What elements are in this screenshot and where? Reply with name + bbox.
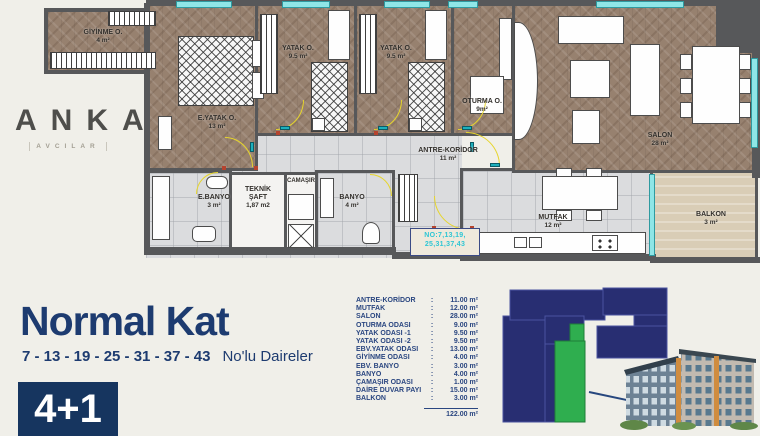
area-row-value: 28.00 m²	[436, 313, 478, 321]
area-row: OTURMA ODASI:9.00 m²	[356, 322, 478, 330]
brand-logo-sub: AVCILAR	[8, 142, 128, 151]
building-svg	[614, 330, 760, 430]
logo-letter: K	[79, 104, 115, 138]
area-row-label: SALON	[356, 313, 428, 321]
chair	[739, 78, 751, 94]
wardrobe-hatch	[398, 174, 418, 222]
room-area: 4 m²	[84, 37, 123, 45]
wall-bottom-4	[650, 257, 760, 263]
chair	[586, 168, 602, 177]
area-row-colon: :	[428, 346, 436, 354]
kitchen-table	[542, 176, 618, 210]
page-subtitle: 7 - 13 - 19 - 25 - 31 - 37 - 43 No'lu Da…	[22, 348, 313, 365]
room-area: 3 m²	[198, 202, 230, 210]
area-row-value: 15.00 m²	[436, 387, 478, 395]
laundry-x	[288, 224, 314, 248]
room-name: E.YATAK O.	[198, 115, 236, 123]
chair	[739, 54, 751, 70]
room-name: ANTRE-KORİDOR	[418, 147, 478, 155]
room-label-ebanyo: E.BANYO 3 m²	[198, 194, 230, 210]
door-jamb	[280, 126, 290, 130]
room-area: 11 m²	[418, 155, 478, 163]
area-row-label: YATAK ODASI -2	[356, 338, 428, 346]
room-label-balkon: BALKON 3 m²	[696, 211, 726, 227]
area-table: ANTRE-KORİDOR:11.00 m² MUTFAK:12.00 m² S…	[356, 297, 478, 418]
room-name: BALKON	[696, 211, 726, 219]
door-jamb	[462, 126, 472, 130]
door-mark	[276, 131, 280, 135]
room-name: YATAK O.	[380, 45, 412, 53]
window-salon-top	[596, 1, 684, 8]
chair	[556, 168, 572, 177]
area-row-value: 4.00 m²	[436, 371, 478, 379]
door-mark	[222, 166, 226, 170]
room-name: BANYO	[339, 194, 364, 202]
room-name: GİYİNME O.	[84, 29, 123, 37]
window-balkon	[649, 174, 655, 256]
sofa	[558, 16, 624, 44]
desk	[328, 10, 350, 60]
logo-sub-text: AVCILAR	[36, 143, 99, 150]
room-label-yatak1: YATAK O. 9.5 m²	[282, 45, 314, 61]
sink-cabinet	[320, 178, 334, 218]
room-label-teknik-saft: TEKNİK ŞAFT 1,87 m2	[236, 186, 280, 210]
area-row-colon: :	[428, 305, 436, 313]
stove	[592, 235, 618, 251]
area-row-value: 9.00 m²	[436, 322, 478, 330]
area-row-colon: :	[428, 330, 436, 338]
side-table	[572, 110, 600, 144]
area-row: BANYO:4.00 m²	[356, 371, 478, 379]
area-row-value: 1.00 m²	[436, 379, 478, 387]
area-row-label: GİYİNME ODASI	[356, 354, 428, 362]
floorplan-brochure: { "brand": { "letters": ["A","N","K","A"…	[0, 0, 760, 430]
sofa	[630, 44, 660, 116]
room-area: 9m²	[462, 106, 502, 114]
area-row: GİYİNME ODASI:4.00 m²	[356, 354, 478, 362]
logo-letter: N	[44, 104, 80, 138]
area-row-colon: :	[428, 387, 436, 395]
area-row-label: BALKON	[356, 395, 428, 403]
room-label-antre: ANTRE-KORİDOR 11 m²	[418, 147, 478, 163]
area-row-value: 12.00 m²	[436, 305, 478, 313]
window-salon-right	[751, 58, 758, 148]
logo-letter: A	[115, 104, 151, 138]
door-jamb	[378, 126, 388, 130]
brand-logo-letters: A N K A	[8, 100, 128, 142]
room-area: 9.5 m²	[380, 53, 412, 61]
room-label-camasir: CAMAŞIR	[287, 177, 315, 185]
room-label-eyatak: E.YATAK O. 13 m²	[198, 115, 236, 131]
area-row: BALKON:3.00 m²	[356, 395, 478, 403]
area-row-value: 4.00 m²	[436, 354, 478, 362]
toilet	[362, 222, 380, 244]
wardrobe-hatch	[108, 11, 156, 26]
logo-letter: A	[8, 104, 44, 138]
room-label-giyinme: GİYİNME O. 4 m²	[84, 29, 123, 45]
dresser	[158, 116, 172, 150]
area-row-label: ANTRE-KORİDOR	[356, 297, 428, 305]
room-area: 28 m²	[648, 140, 673, 148]
room-name: OTURMA O.	[462, 98, 502, 106]
room-name: E.BANYO	[198, 194, 230, 202]
area-row-value: 11.00 m²	[436, 297, 478, 305]
area-row-colon: :	[428, 354, 436, 362]
area-row-value: 13.00 m²	[436, 346, 478, 354]
desk	[425, 10, 447, 60]
area-row-colon: :	[428, 313, 436, 321]
chair	[680, 102, 692, 118]
unit-number-line2: 25,31,37,43	[411, 241, 479, 250]
window-yatak2	[384, 1, 430, 8]
armchair	[570, 60, 610, 98]
area-row: ANTRE-KORİDOR:11.00 m²	[356, 297, 478, 305]
logo-sub-bar	[29, 142, 30, 151]
unit-number-box: NO:7,13,19, 25,31,37,43	[410, 228, 480, 256]
window-eyatak	[176, 1, 232, 8]
room-label-salon: SALON 28 m²	[648, 132, 673, 148]
room-name: MUTFAK	[538, 214, 567, 222]
area-row-label: EBV. BANYO	[356, 363, 428, 371]
area-row-label: YATAK ODASI -1	[356, 330, 428, 338]
area-row-colon: :	[428, 395, 436, 403]
chair	[680, 78, 692, 94]
unit-type-badge: 4+1	[18, 382, 118, 436]
room-label-oturma: OTURMA O. 9m²	[462, 98, 502, 114]
wardrobe-hatch	[359, 14, 377, 94]
room-label-yatak2: YATAK O. 9.5 m²	[380, 45, 412, 61]
room-area: 3 m²	[696, 219, 726, 227]
brand-logo: A N K A AVCILAR	[8, 100, 128, 151]
logo-sub-bar	[106, 142, 107, 151]
area-row: SALON:28.00 m²	[356, 313, 478, 321]
sink	[529, 237, 542, 248]
chair	[680, 54, 692, 70]
room-label-mutfak: MUTFAK 12 m²	[538, 214, 567, 230]
wall-bottom-3	[460, 254, 656, 261]
chair	[586, 210, 602, 221]
chair	[739, 102, 751, 118]
room-name: TEKNİK ŞAFT	[236, 186, 280, 202]
wall-bottom-1	[144, 247, 396, 255]
room-area: 12 m²	[538, 222, 567, 230]
kitchen-counter	[466, 232, 646, 254]
door-mark	[374, 131, 378, 135]
area-row: EBV. BANYO:3.00 m²	[356, 363, 478, 371]
unit-number-line1: NO:7,13,19,	[411, 232, 479, 241]
page-title: Normal Kat	[20, 298, 229, 345]
area-row: DAİRE DUVAR PAYI:15.00 m²	[356, 387, 478, 395]
room-area: 9.5 m²	[282, 53, 314, 61]
area-total: 122.00 m²	[424, 408, 478, 418]
window-yatak1	[282, 1, 330, 8]
door-mark	[254, 166, 258, 170]
room-teknik-saft	[229, 172, 287, 250]
area-row-colon: :	[428, 371, 436, 379]
area-row: YATAK ODASI -2:9.50 m²	[356, 338, 478, 346]
window-oturma	[448, 1, 478, 8]
area-row-label: ÇAMAŞIR ODASI	[356, 379, 428, 387]
wardrobe-hatch	[50, 52, 156, 69]
room-name: YATAK O.	[282, 45, 314, 53]
area-row-label: BANYO	[356, 371, 428, 379]
room-label-banyo: BANYO 4 m²	[339, 194, 364, 210]
area-row: YATAK ODASI -1:9.50 m²	[356, 330, 478, 338]
area-row-colon: :	[428, 338, 436, 346]
area-row-value: 3.00 m²	[436, 395, 478, 403]
dining-table	[692, 46, 740, 124]
sink	[514, 237, 527, 248]
laundry-box	[288, 194, 314, 220]
room-area: 1,87 m2	[236, 202, 280, 210]
area-row-value: 9.50 m²	[436, 338, 478, 346]
bed-corner	[312, 118, 325, 131]
area-row-colon: :	[428, 297, 436, 305]
room-name: SALON	[648, 132, 673, 140]
room-area: 4 m²	[339, 202, 364, 210]
area-row-label: DAİRE DUVAR PAYI	[356, 387, 428, 395]
area-row-colon: :	[428, 363, 436, 371]
room-name: CAMAŞIR	[287, 177, 315, 185]
wardrobe-hatch	[260, 14, 278, 94]
building-rendering	[614, 330, 760, 430]
area-row-label: OTURMA ODASI	[356, 322, 428, 330]
bed-double	[178, 36, 254, 106]
area-row-label: MUTFAK	[356, 305, 428, 313]
area-row-colon: :	[428, 379, 436, 387]
area-row-colon: :	[428, 322, 436, 330]
area-row: ÇAMAŞIR ODASI:1.00 m²	[356, 379, 478, 387]
area-row: MUTFAK:12.00 m²	[356, 305, 478, 313]
sofa	[499, 18, 512, 80]
closet	[152, 176, 170, 240]
subtitle-numbers: 7 - 13 - 19 - 25 - 31 - 37 - 43	[22, 348, 210, 365]
door-jamb	[490, 163, 500, 167]
area-row-value: 9.50 m²	[436, 330, 478, 338]
bed-corner	[409, 118, 422, 131]
area-row-value: 3.00 m²	[436, 363, 478, 371]
toilet	[192, 226, 216, 242]
subtitle-text: No'lu Daireler	[222, 348, 312, 365]
door-jamb	[250, 142, 254, 152]
room-area: 13 m²	[198, 123, 236, 131]
